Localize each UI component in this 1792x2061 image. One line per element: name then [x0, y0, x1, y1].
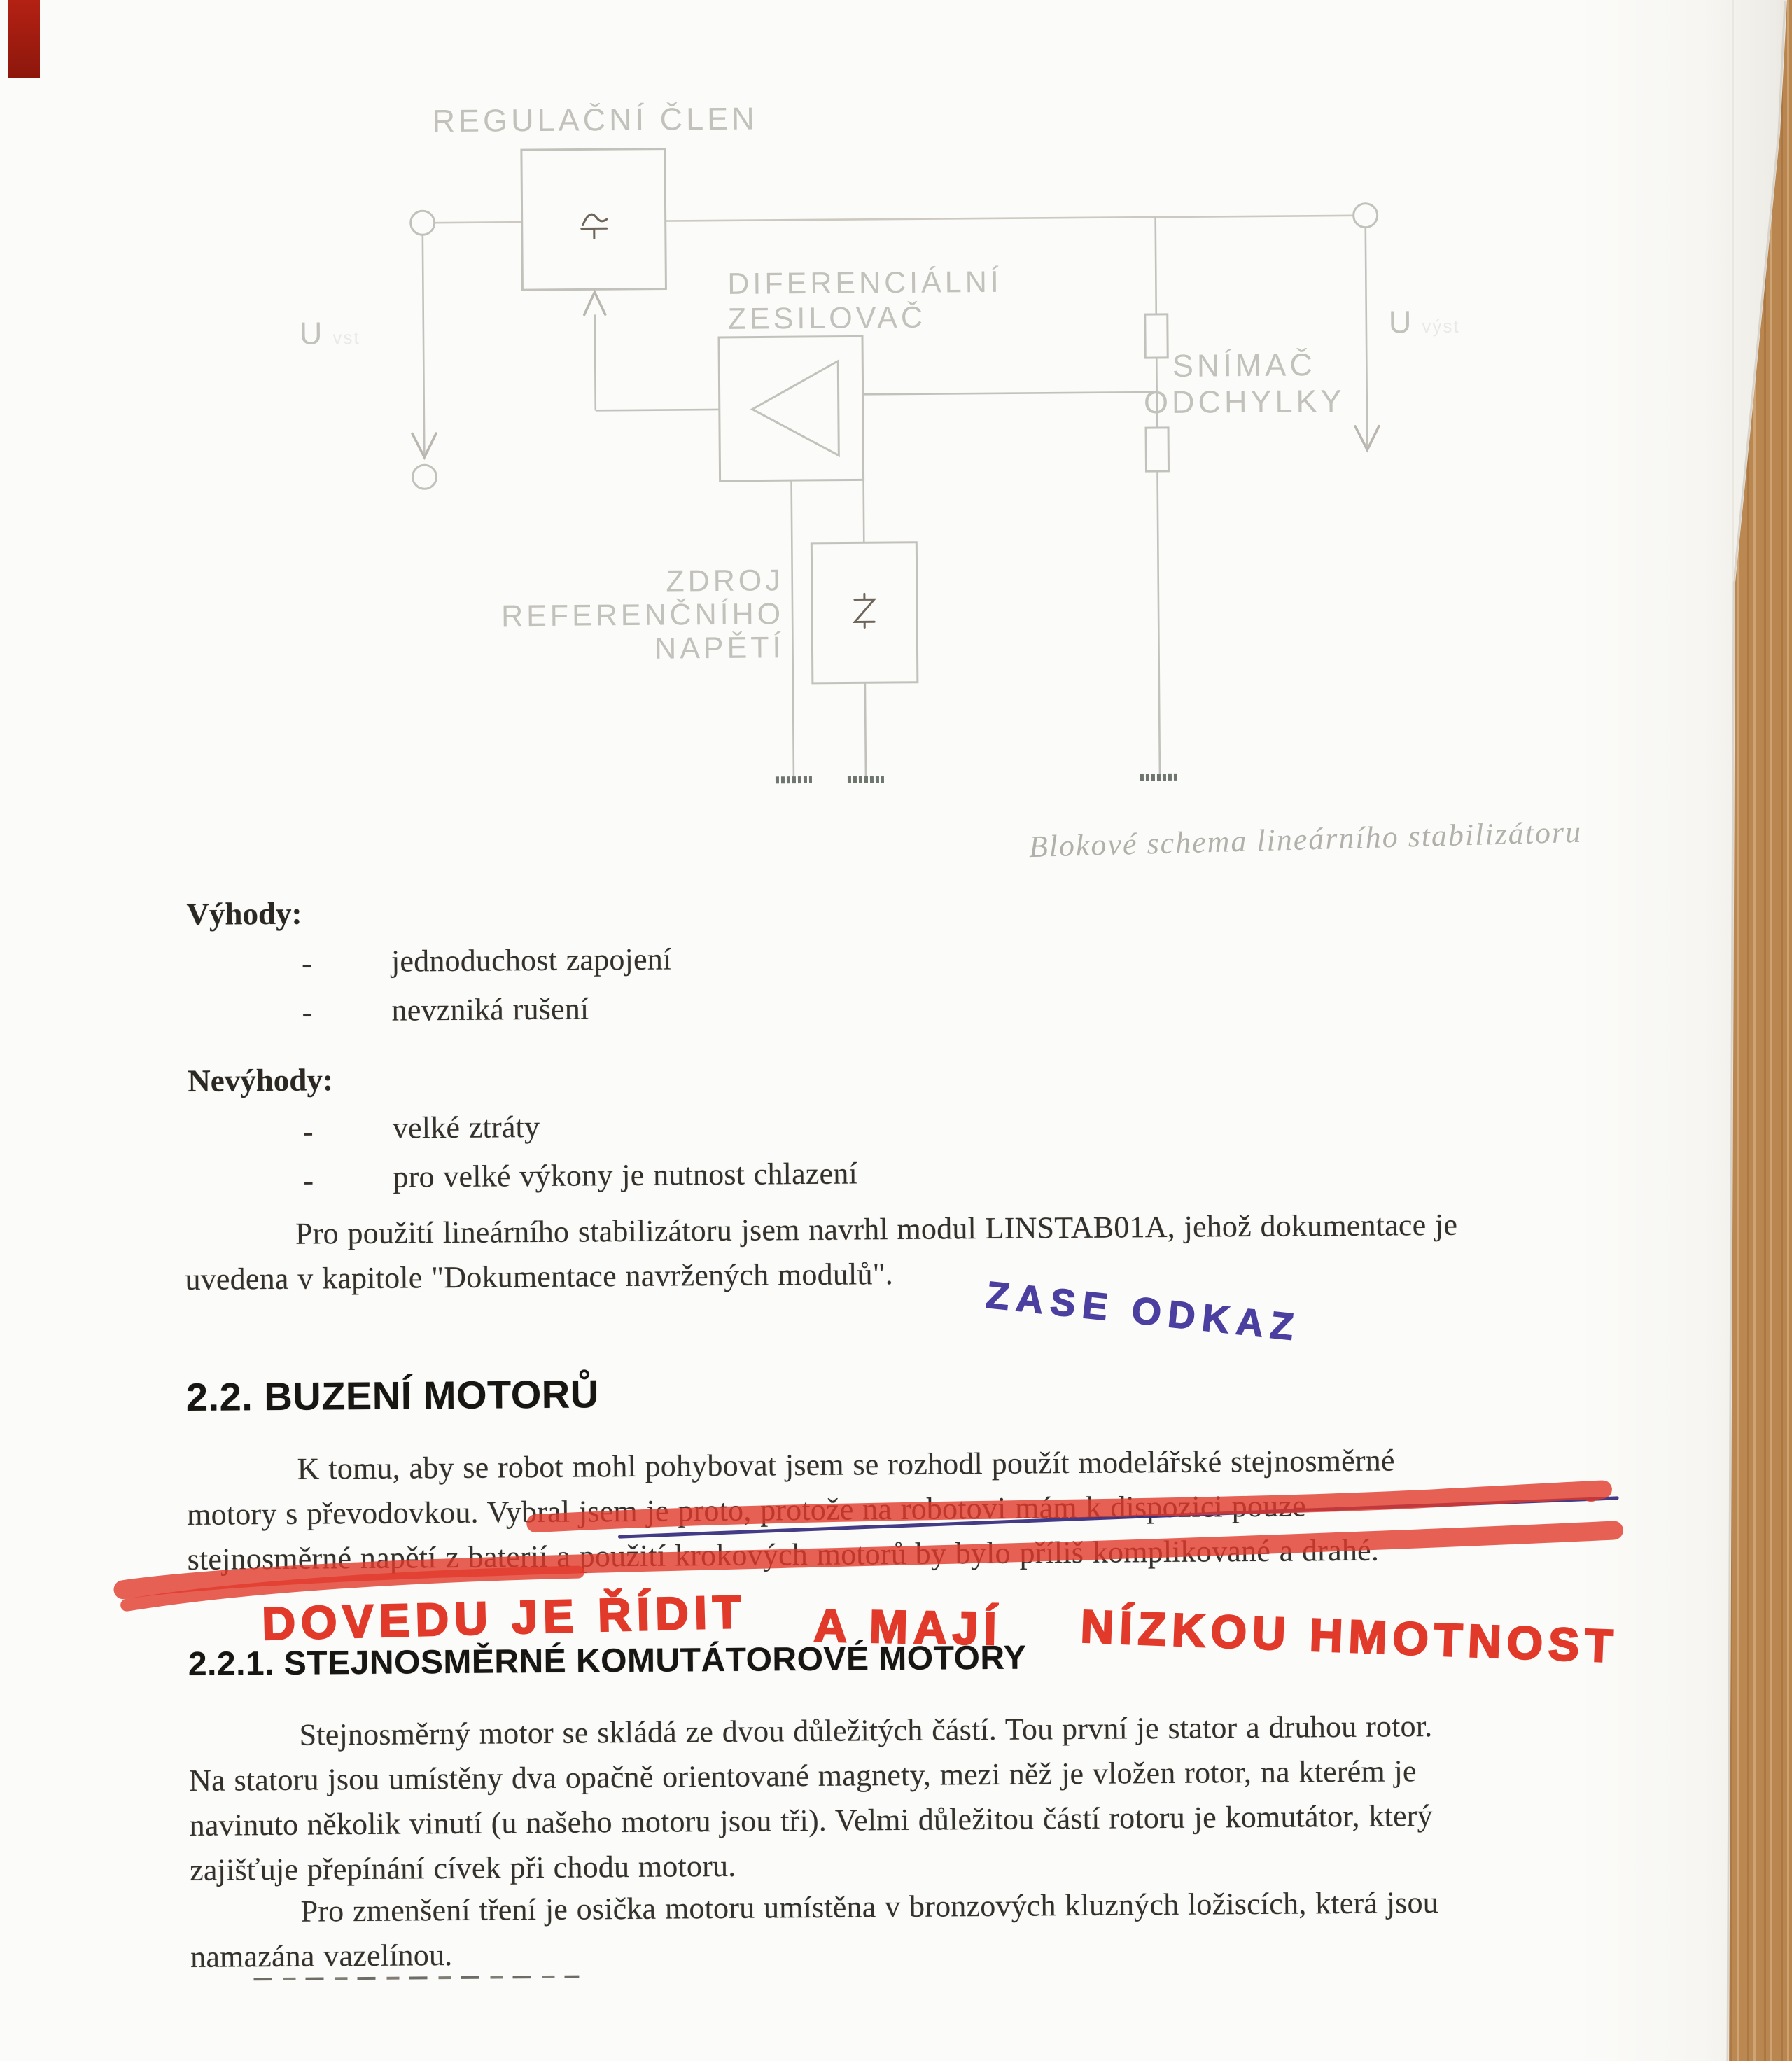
advantage-item: jednoduchost zapojení: [391, 943, 672, 979]
disadvantages-title: Nevýhody:: [188, 1061, 333, 1099]
paragraph-line: zajišťuje přepínání cívek při chodu moto…: [190, 1850, 736, 1888]
main-rail: [434, 216, 1354, 223]
scanned-document-photo: REGULAČNÍ ČLEN DIFERENCIÁLNÍ ZESILOVAČ S…: [0, 0, 1792, 2061]
disadvantage-item: pro velké výkony je nutnost chlazení: [393, 1157, 857, 1194]
u-input-subscript: vst: [332, 327, 360, 348]
regulator-box: [521, 149, 666, 291]
bullet-dash: -: [302, 947, 312, 981]
regulator-label: REGULAČNÍ ČLEN: [432, 101, 754, 140]
paragraph-line: K tomu, aby se robot mohl pohybovat jsem…: [297, 1444, 1394, 1486]
ref-label-line2: REFERENČNÍHO: [479, 597, 784, 634]
ref-label-line3: NAPĚTÍ: [479, 631, 784, 667]
bullet-dash: -: [303, 1115, 314, 1150]
red-note-part3: NÍZKOU HMOTNOST: [1079, 1600, 1619, 1673]
diff-amp-box: [719, 336, 866, 781]
paragraph-line: stejnosměrné napětí z baterií a použití …: [187, 1534, 1379, 1577]
reference-source-box: [811, 394, 918, 780]
paragraph-line: navinuto několik vinutí (u našeho motoru…: [189, 1799, 1432, 1843]
bullet-dash: -: [303, 1164, 314, 1199]
bullet-dash: -: [302, 996, 312, 1030]
sensor-label-line2: ODCHYLKY: [1094, 382, 1395, 421]
paragraph-line: Pro zmenšení tření je osička motoru umís…: [300, 1886, 1438, 1929]
paragraph-line: Pro použití lineárního stabilizátoru jse…: [295, 1208, 1458, 1251]
control-wire: [584, 291, 719, 411]
section-heading-2-2-1: 2.2.1. STEJNOSMĚRNÉ KOMUTÁTOROVÉ MOTORY: [188, 1639, 1027, 1684]
advantages-title: Výhody:: [186, 895, 302, 932]
paper-page: REGULAČNÍ ČLEN DIFERENCIÁLNÍ ZESILOVAČ S…: [0, 0, 1792, 2061]
u-input-label: Uvst: [300, 315, 360, 352]
scan-content: REGULAČNÍ ČLEN DIFERENCIÁLNÍ ZESILOVAČ S…: [0, 0, 1792, 2061]
diff-amp-label-line1: DIFERENCIÁLNÍ: [727, 265, 1002, 302]
diff-amp-label-line2: ZESILOVAČ: [728, 301, 927, 337]
section-heading-2-2: 2.2. BUZENÍ MOTORŮ: [186, 1371, 599, 1420]
handwritten-blue-note: ZASE ODKAZ: [984, 1273, 1303, 1350]
scan-edge-marks: [253, 1976, 579, 1981]
block-diagram-svg: [0, 0, 1791, 889]
paragraph-line: Stejnosměrný motor se skládá ze dvou důl…: [299, 1710, 1432, 1752]
red-note-part1: DOVEDU JE ŘÍDIT: [261, 1585, 747, 1650]
u-output-subscript: výst: [1422, 316, 1459, 337]
input-terminals: [411, 211, 437, 489]
paragraph-line: Na statoru jsou umístěny dva opačně orie…: [189, 1754, 1417, 1798]
red-corner-mark: [8, 0, 40, 78]
paragraph-line: uvedena v kapitole "Dokumentace navržený…: [185, 1257, 893, 1297]
advantage-item: nevzniká rušení: [391, 992, 589, 1028]
paragraph-line: motory s převodovkou. Vybral jsem je pro…: [187, 1489, 1306, 1532]
handwritten-red-note: DOVEDU JE ŘÍDIT A MAJÍ NÍZKOU HMOTNOST: [262, 1582, 1619, 1646]
u-output-label: Uvýst: [1389, 304, 1460, 341]
paragraph-line: namazána vazelínou.: [190, 1938, 453, 1974]
ref-label-line1: ZDROJ: [479, 564, 784, 600]
disadvantage-item: velké ztráty: [393, 1110, 540, 1145]
sensor-label-line1: SNÍMAČ: [1093, 346, 1394, 384]
